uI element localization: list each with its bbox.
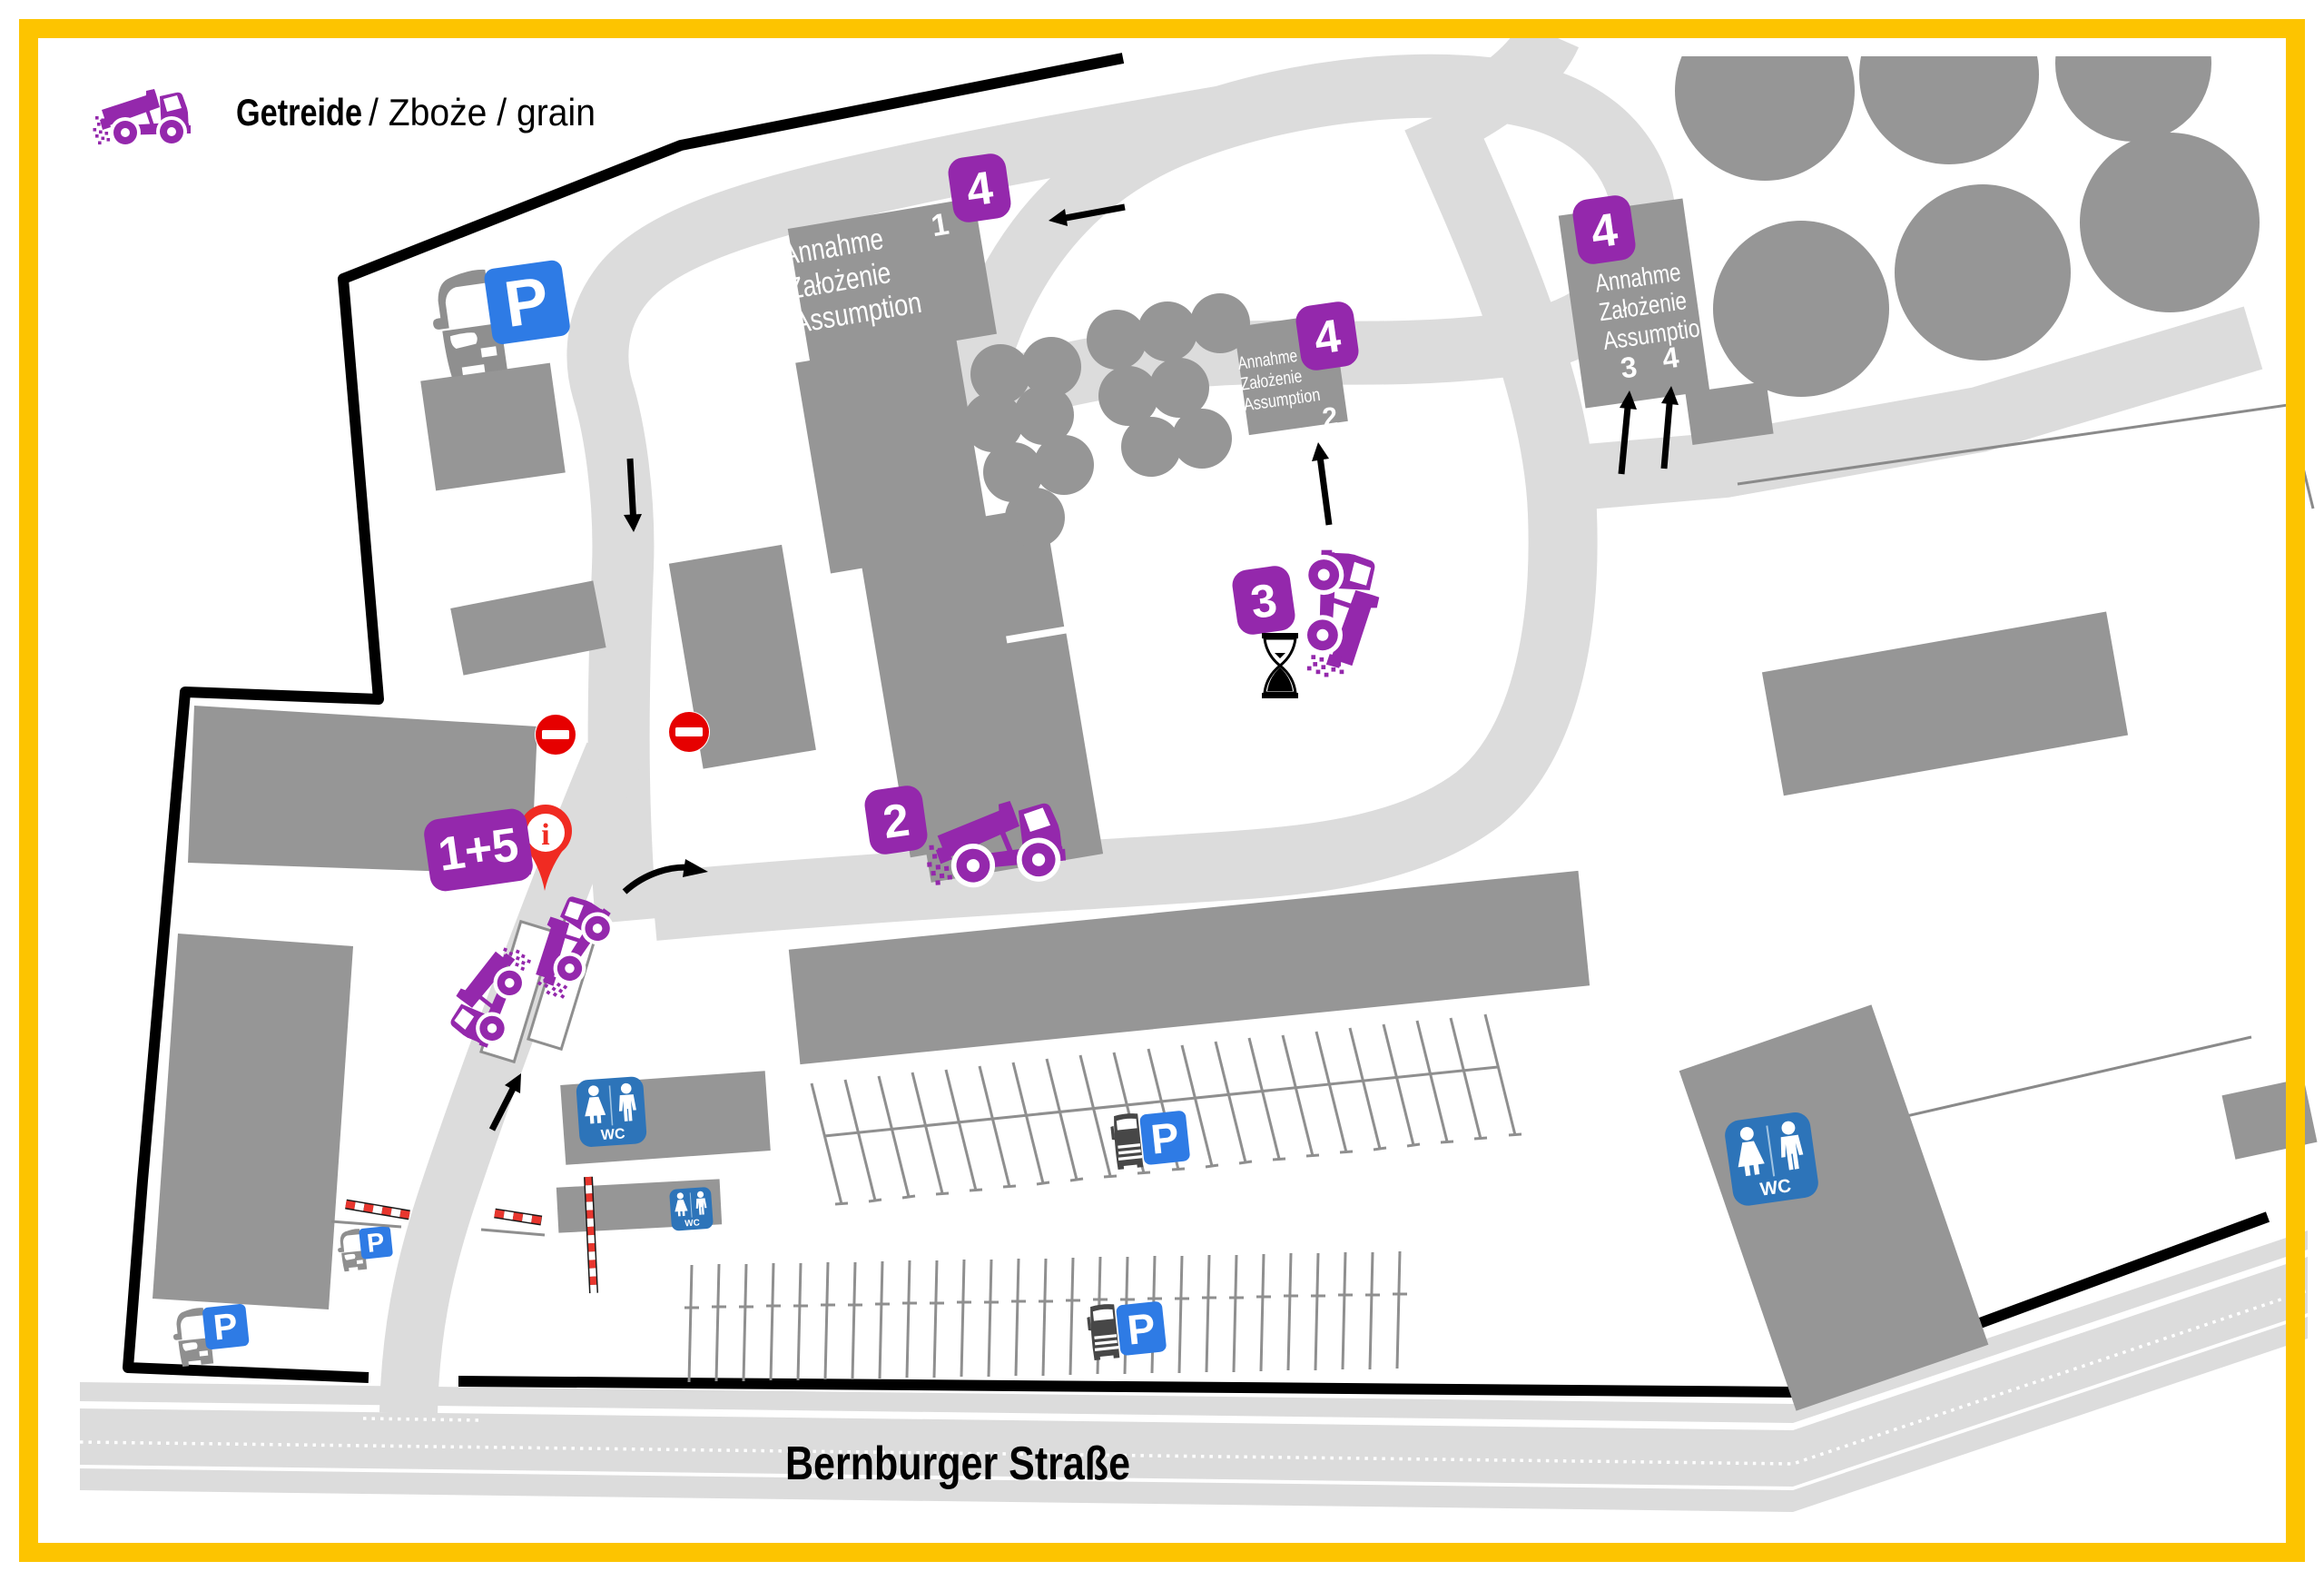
svg-text:1+5: 1+5 (435, 818, 521, 882)
svg-text:/ Zboże / grain: / Zboże / grain (369, 91, 596, 133)
svg-text:Getreide: Getreide (236, 91, 362, 133)
svg-text:i: i (541, 818, 549, 852)
svg-text:Bernburger Straße: Bernburger Straße (785, 1438, 1130, 1490)
